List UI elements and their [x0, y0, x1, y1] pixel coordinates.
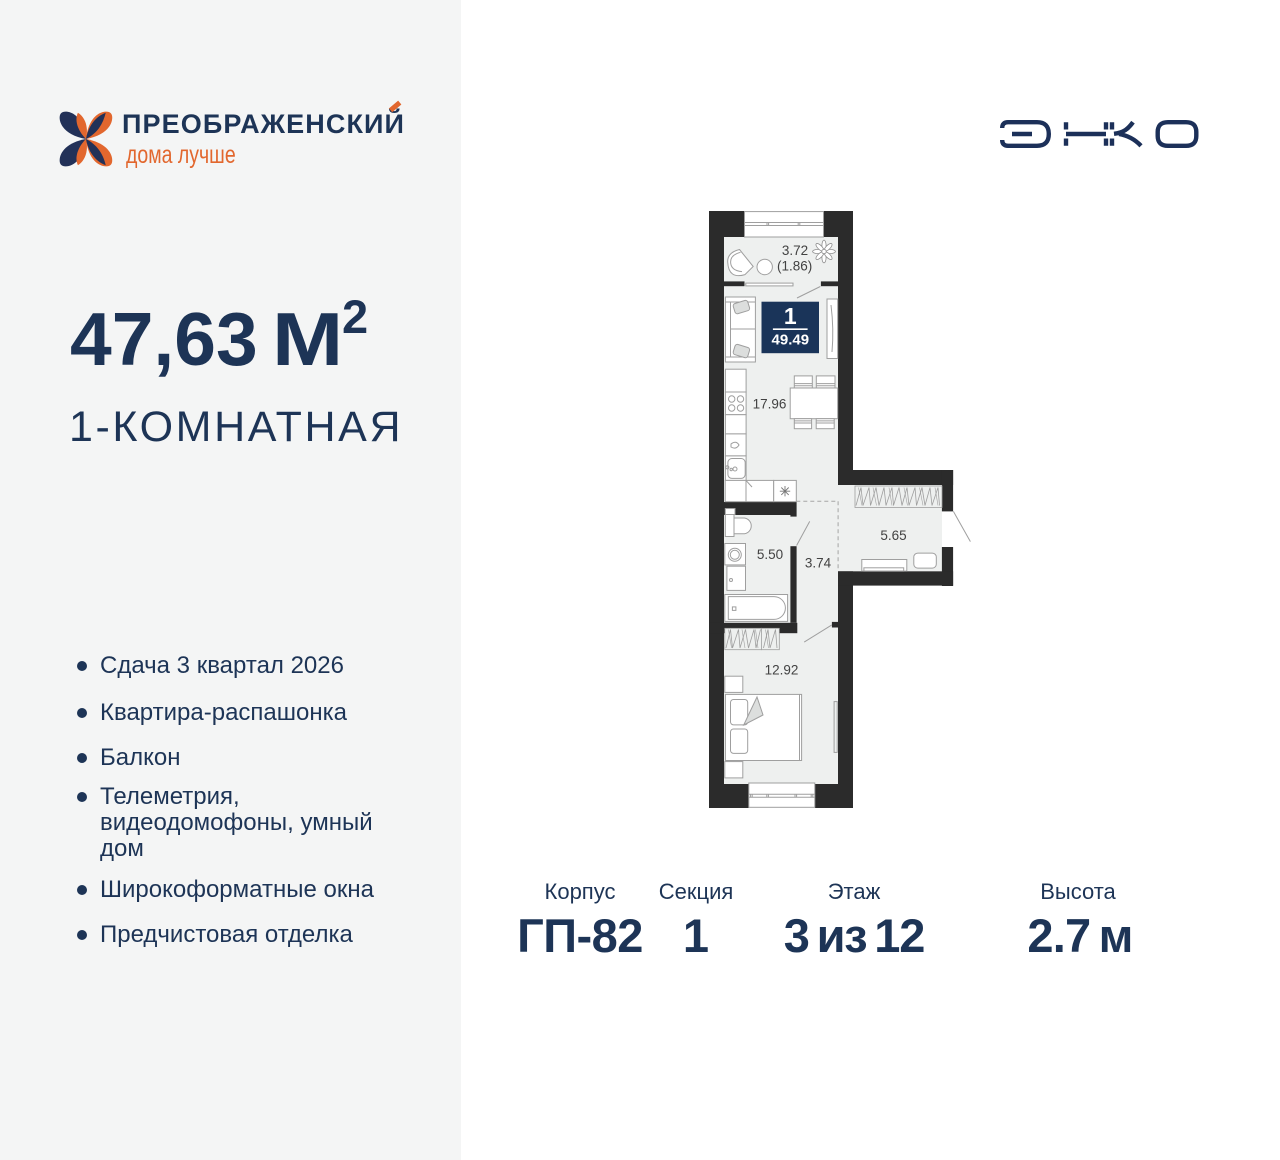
svg-text:3.72: 3.72	[782, 243, 808, 258]
svg-text:5.50: 5.50	[757, 547, 783, 562]
svg-text:1: 1	[784, 303, 797, 329]
svg-text:12.92: 12.92	[765, 663, 799, 678]
svg-text:3.74: 3.74	[805, 556, 832, 571]
svg-text:49.49: 49.49	[772, 332, 810, 349]
svg-text:17.96: 17.96	[753, 397, 787, 412]
svg-text:(1.86): (1.86)	[777, 259, 812, 274]
svg-text:5.65: 5.65	[880, 528, 906, 543]
